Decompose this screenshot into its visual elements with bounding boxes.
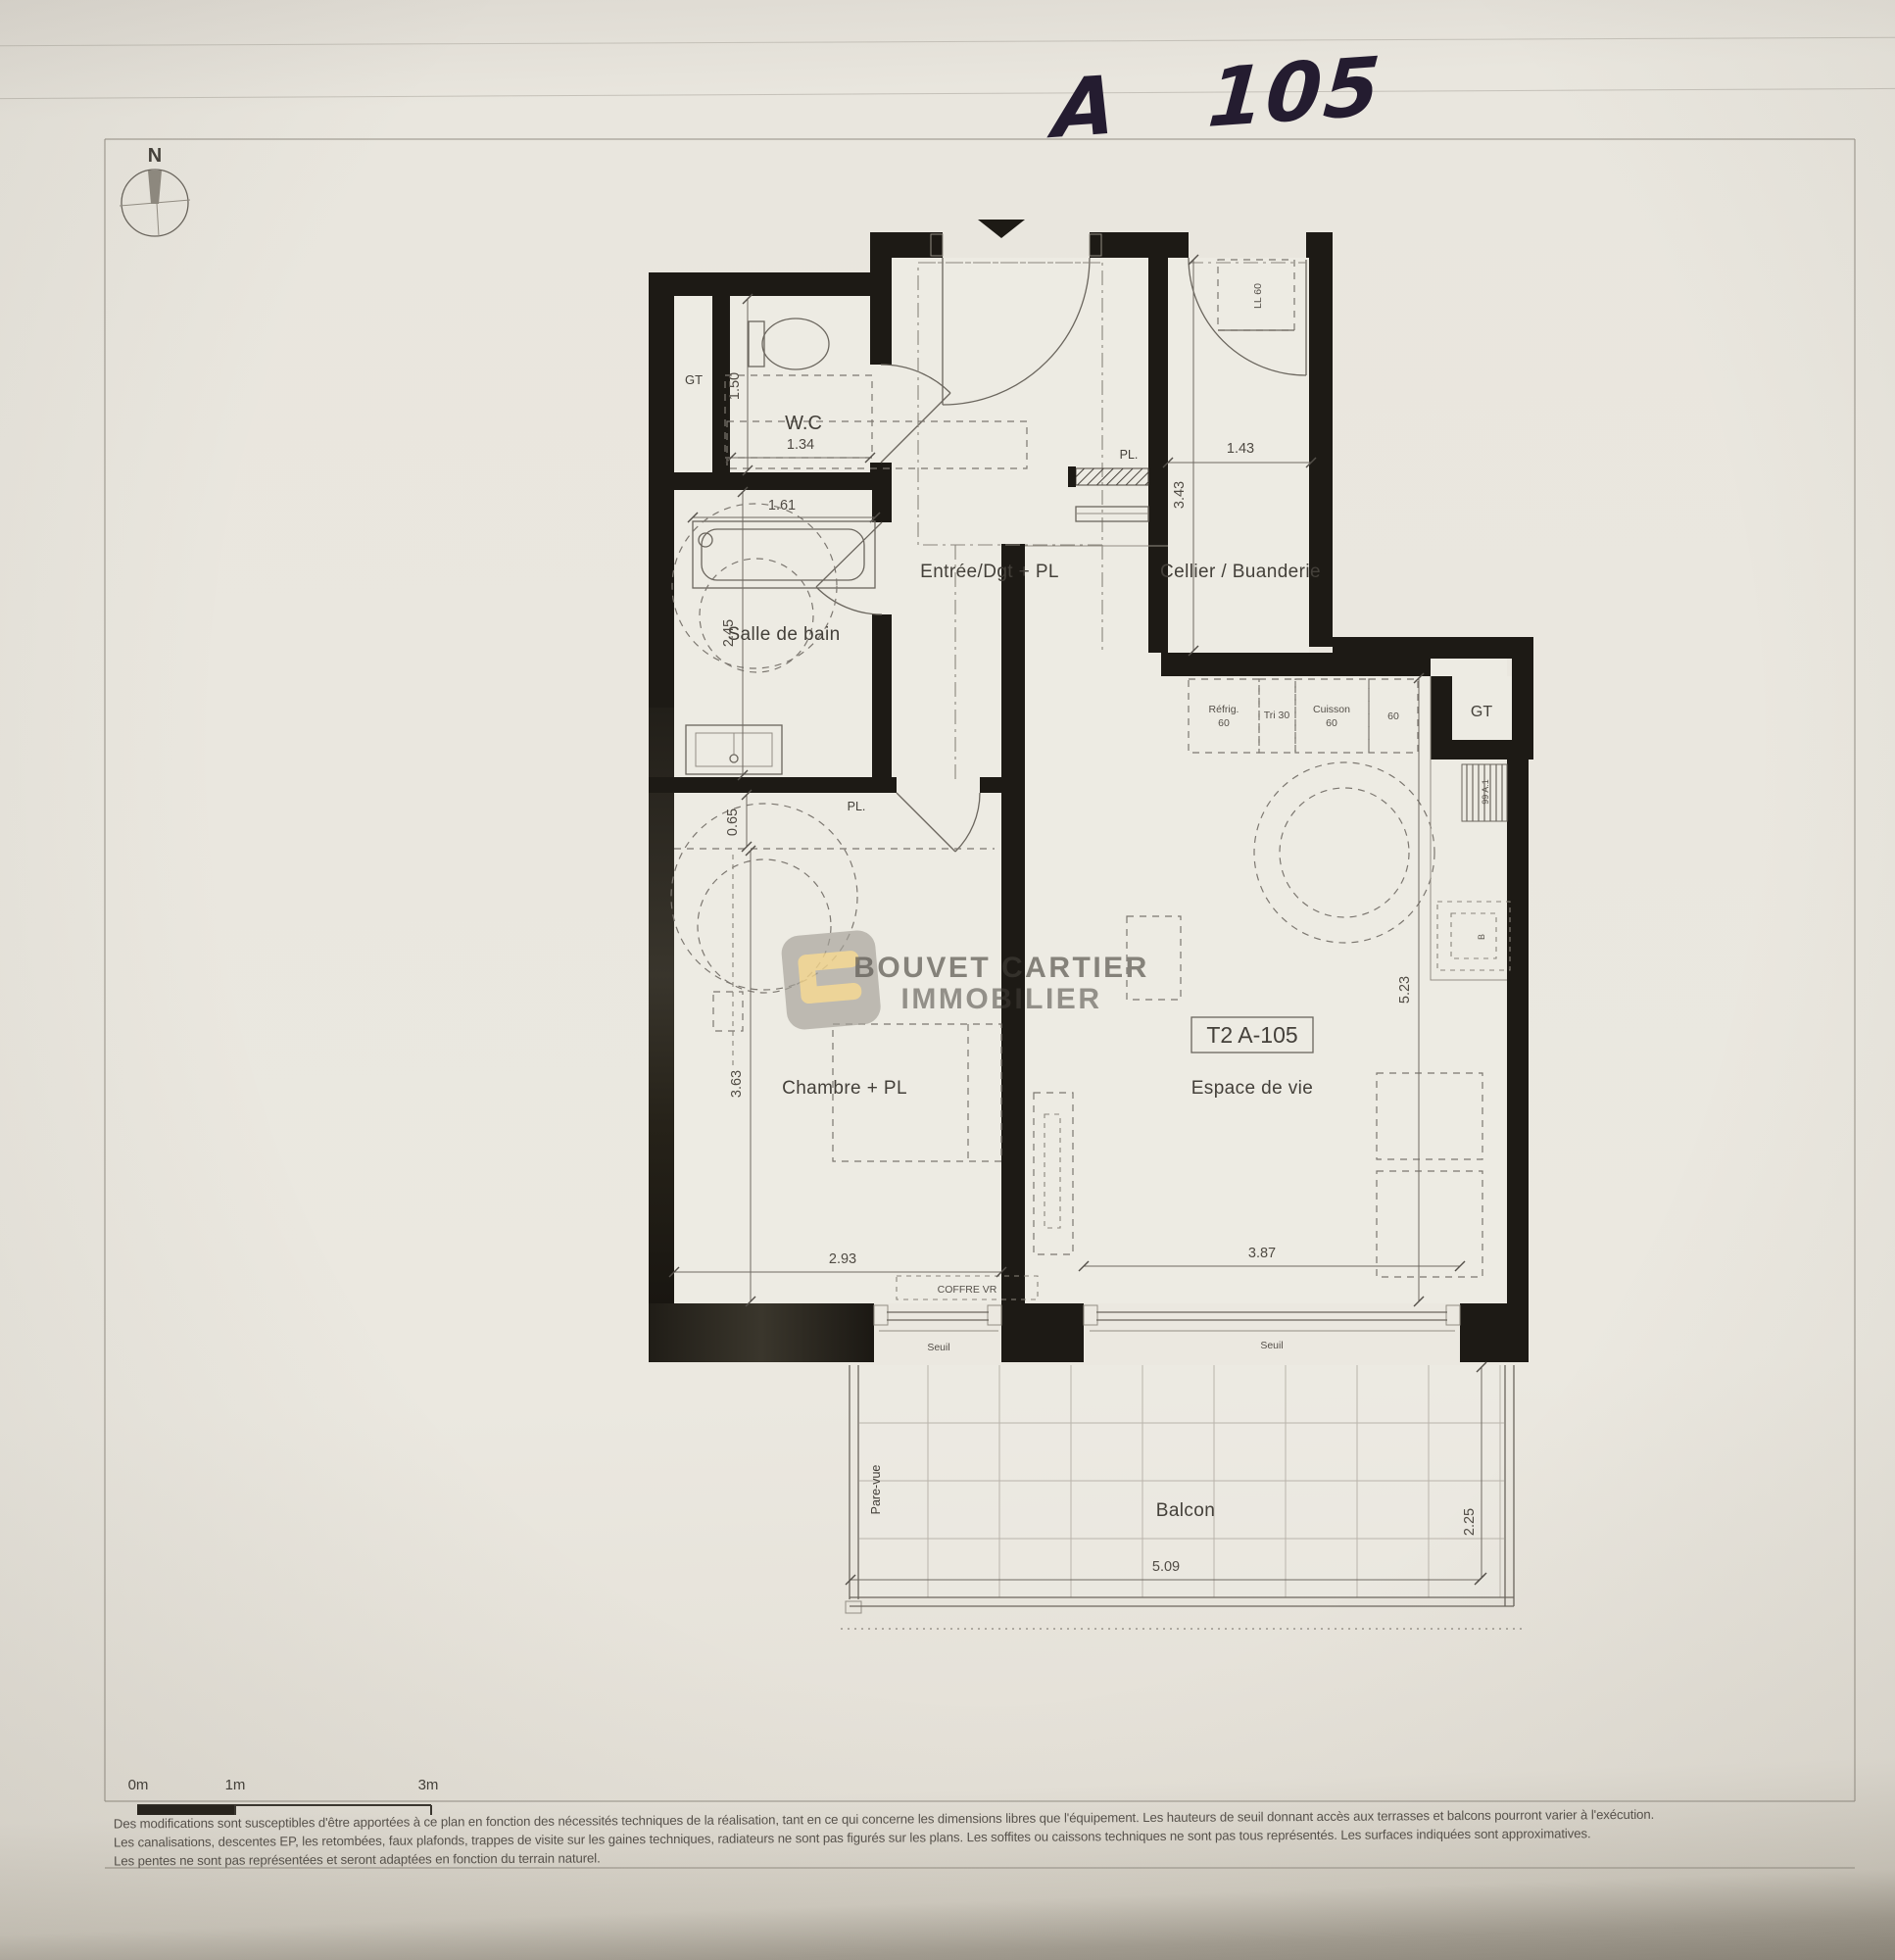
worktop-size: 60 [1387, 710, 1399, 722]
entry-label: Entrée/Dgt + PL [920, 562, 1059, 582]
fridge-size: 60 [1218, 717, 1230, 729]
dim-living-depth: 5.23 [1397, 976, 1413, 1004]
cooktop-label: Cuisson [1313, 704, 1350, 715]
room-floors [674, 258, 1512, 1597]
dim-bedroom-depth: 3.63 [729, 1070, 745, 1098]
threshold-right-label: Seuil [1260, 1340, 1283, 1351]
floor-plan-drawing: N [0, 0, 1895, 1960]
scale-bar: 0m 1m 3m [128, 1777, 439, 1815]
unit-tag-label: T2 A-105 [1206, 1022, 1297, 1048]
bedroom-label: Chambre + PL [782, 1078, 907, 1099]
bathroom-label: Salle de bain [727, 624, 840, 645]
north-needle [148, 171, 162, 204]
dim-bath-depth: 2.45 [721, 619, 737, 647]
sink-label: B [1477, 934, 1486, 940]
dim-balcony-depth: 2.25 [1462, 1508, 1478, 1536]
entry-closet-label: PL. [1120, 448, 1139, 462]
plan-disclaimer: Des modifications sont susceptibles d'êt… [114, 1804, 1868, 1871]
dim-bath-width: 1.61 [768, 498, 796, 514]
dim-wc-depth: 1.50 [727, 372, 743, 400]
duct-right-label: GT [1471, 704, 1492, 720]
fridge-label: Réfrig. [1209, 704, 1239, 715]
dim-wc-width: 1.34 [787, 437, 814, 453]
bedroom-closet-label: PL. [848, 800, 866, 813]
wall-smudged-left [649, 708, 674, 1303]
washer-label: LL 60 [1252, 283, 1264, 309]
dim-cellar-depth: 3.43 [1172, 481, 1188, 509]
scale-0m: 0m [128, 1777, 149, 1793]
cooktop-size: 60 [1326, 717, 1337, 729]
dim-cellar-width: 1.43 [1227, 441, 1254, 457]
duct-left-label: GT [685, 372, 703, 387]
scale-1m: 1m [225, 1777, 246, 1793]
privacy-screen-label: Pare-vue [869, 1465, 883, 1515]
threshold-left-label: Seuil [927, 1342, 949, 1353]
wall-smudged-bottom [649, 1303, 874, 1362]
dim-living-width: 3.87 [1248, 1246, 1276, 1261]
scale-3m: 3m [418, 1777, 439, 1793]
living-label: Espace de vie [1191, 1078, 1314, 1099]
watermark-name: BOUVET CARTIER [853, 952, 1149, 984]
sorting-label: Tri 30 [1264, 710, 1290, 721]
dim-balcony-width: 5.09 [1152, 1559, 1180, 1575]
balcony-label: Balcon [1156, 1500, 1216, 1521]
dim-bedroom-width: 2.93 [829, 1251, 856, 1267]
watermark-subname: IMMOBILIER [901, 983, 1102, 1015]
wc-label: W.C [785, 413, 822, 434]
cellar-label: Cellier / Buanderie [1160, 562, 1321, 582]
photographed-plan-sheet: A 105 [0, 0, 1895, 1960]
shaft-label: 99 A.1 [1481, 779, 1490, 805]
north-compass: N [120, 145, 190, 236]
shutter-box-label: COFFRE VR [938, 1284, 997, 1296]
dim-closet-depth: 0.65 [725, 808, 741, 836]
north-label: N [148, 145, 162, 167]
entrance-marker-icon [978, 220, 1025, 238]
